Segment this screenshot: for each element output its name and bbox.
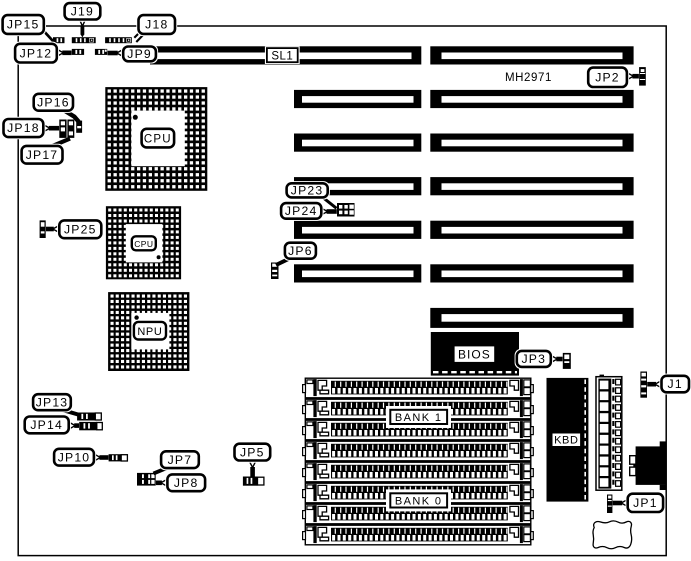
svg-text:JP15: JP15 <box>7 18 40 32</box>
svg-text:JP12: JP12 <box>20 46 53 60</box>
svg-text:KBD: KBD <box>554 435 578 447</box>
svg-text:CPU: CPU <box>144 134 172 146</box>
svg-text:JP18: JP18 <box>7 121 40 135</box>
svg-text:NPU: NPU <box>137 326 162 338</box>
svg-text:J1: J1 <box>668 377 683 391</box>
svg-text:SL1: SL1 <box>271 50 293 62</box>
svg-text:BANK 1: BANK 1 <box>395 412 443 424</box>
svg-text:MH2971: MH2971 <box>505 72 552 84</box>
svg-text:JP2: JP2 <box>595 71 620 85</box>
svg-text:JP6: JP6 <box>288 244 313 258</box>
svg-text:JP10: JP10 <box>58 450 91 464</box>
svg-text:JP17: JP17 <box>26 148 59 162</box>
svg-text:JP25: JP25 <box>64 223 97 237</box>
svg-text:BANK 0: BANK 0 <box>395 495 443 507</box>
svg-text:JP23: JP23 <box>291 184 324 198</box>
svg-text:JP24: JP24 <box>285 204 318 218</box>
svg-text:JP16: JP16 <box>37 96 70 110</box>
svg-text:JP3: JP3 <box>521 352 546 366</box>
svg-text:JP8: JP8 <box>174 476 199 490</box>
svg-text:BIOS: BIOS <box>458 348 491 362</box>
svg-text:JP7: JP7 <box>168 453 193 467</box>
svg-text:J19: J19 <box>71 5 94 19</box>
svg-text:JP1: JP1 <box>633 496 658 510</box>
svg-text:J18: J18 <box>145 18 168 32</box>
svg-text:JP14: JP14 <box>30 418 63 432</box>
svg-text:JP9: JP9 <box>127 47 152 61</box>
svg-text:CPU: CPU <box>134 239 153 249</box>
svg-text:JP13: JP13 <box>36 395 69 409</box>
svg-text:JP5: JP5 <box>240 445 265 459</box>
